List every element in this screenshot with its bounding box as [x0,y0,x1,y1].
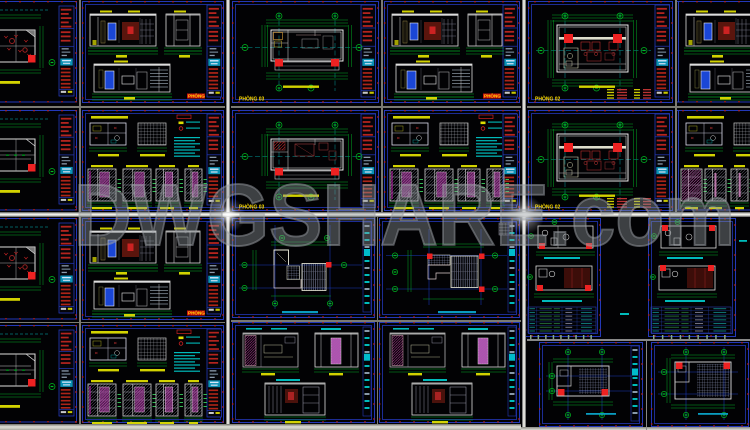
svg-text:PHÒNG 03: PHÒNG 03 [239,95,265,103]
svg-text:PHÒNG 02: PHÒNG 02 [535,95,561,103]
svg-text:PHÒNG: PHÒNG [188,92,205,99]
svg-text:PHÒNG: PHÒNG [484,92,501,99]
svg-text:PHÒNG: PHÒNG [188,309,205,316]
